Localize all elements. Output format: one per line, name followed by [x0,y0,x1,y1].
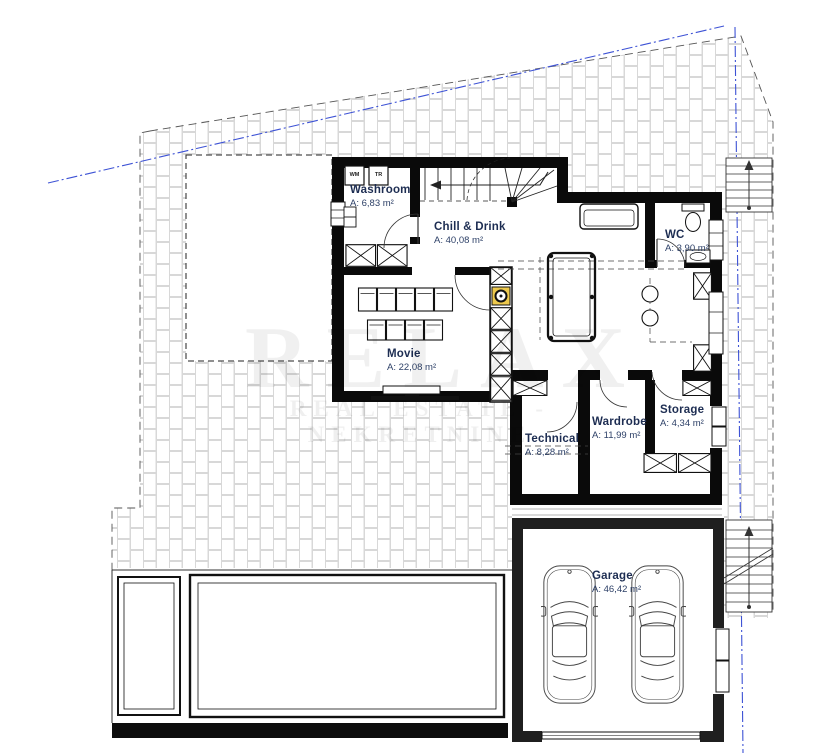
washroom-window [331,202,345,226]
room-label-chill-drink: Chill & Drink A: 40,08 m² [434,221,506,246]
floor-plan-page: RELAX REAL ESTATE - NEKRETNINE WM TR Was… [0,0,835,753]
room-label-garage: Garage A: 46,42 m² [592,570,641,595]
room-label-wc: WC A: 3,90 m² [665,229,709,254]
flue-icon [492,287,510,305]
room-label-washroom: Washroom A: 6,83 m² [350,184,411,209]
storage-door [712,407,726,446]
tumble-dryer-label: TR [369,166,388,185]
garage-side-door [716,629,729,692]
room-label-movie: Movie A: 22,08 m² [387,348,436,373]
chimney-shaft [490,267,512,402]
exterior-stairs-top [726,158,772,212]
garage-door [542,732,700,739]
sofa [580,204,638,229]
floor-plan-drawing [0,0,835,753]
room-label-wardrobe: Wardrobe A: 11,99 m² [592,416,647,441]
washing-machine-label: WM [345,166,364,185]
hall-window [709,292,723,354]
room-label-technical: Technical A: 8,28 m² [525,433,579,458]
wc-window [709,220,723,260]
exterior-stairs-bottom [724,520,773,612]
washroom-sink [344,207,356,227]
room-label-storage: Storage A: 4,34 m² [660,404,704,429]
